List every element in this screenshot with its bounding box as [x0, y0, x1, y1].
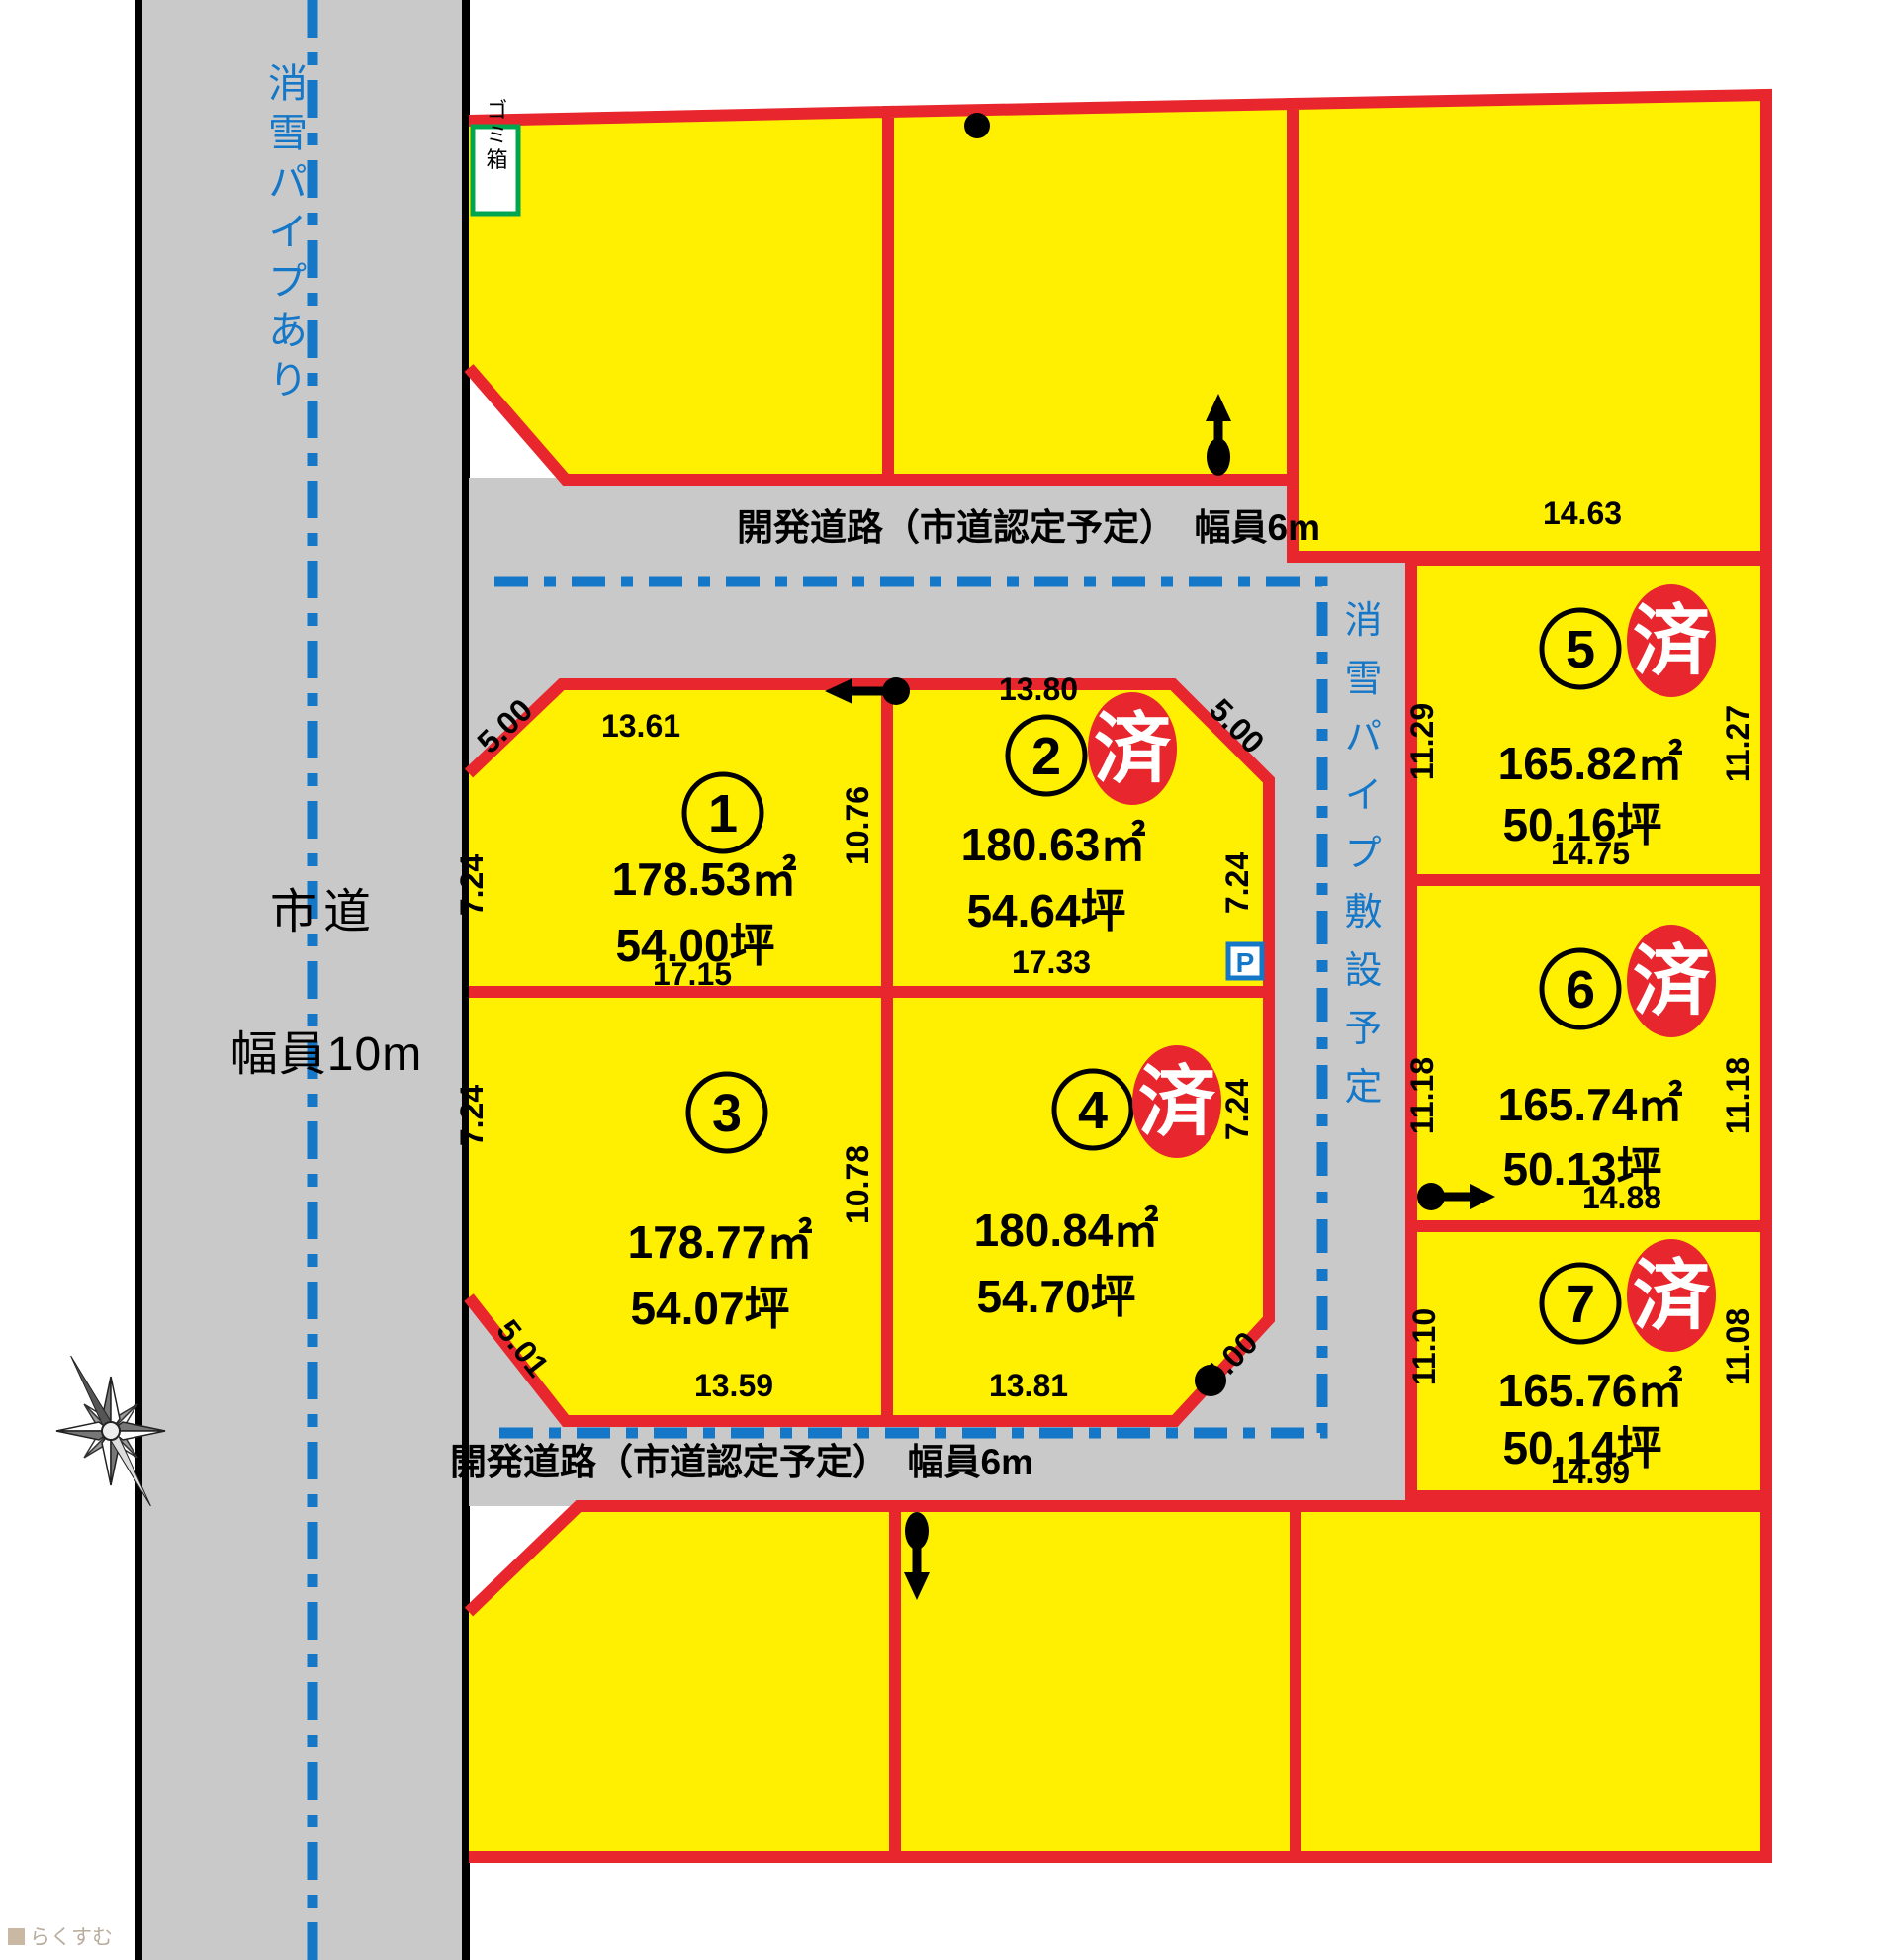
- lot-2-dim-right: 7.24: [1219, 852, 1255, 914]
- lot-2-dim-bottom: 17.33: [1012, 944, 1091, 980]
- lot-bottom-middle: [895, 1506, 1296, 1857]
- lot-4-tsubo: 54.70坪: [976, 1271, 1135, 1322]
- lot-1-dim-left: 7.24: [454, 854, 490, 916]
- lot-2-number: 2: [1031, 727, 1061, 786]
- parking-icon-label: P: [1236, 947, 1255, 978]
- lot-7-area: 165.76㎡: [1498, 1365, 1683, 1416]
- lot-5-area: 165.82㎡: [1498, 738, 1683, 789]
- lot-5-sold-label: 済: [1633, 597, 1711, 684]
- lot-bottom-left: [469, 1506, 895, 1857]
- lot-7-tsubo: 50.14坪: [1502, 1422, 1661, 1473]
- lot-3-dim-left: 7.24: [454, 1085, 490, 1146]
- lot-top-middle: [888, 104, 1293, 480]
- snow-pipe-existing-label: 消雪パイプあり: [262, 62, 307, 408]
- lot-3-tsubo: 54.07坪: [630, 1283, 789, 1334]
- lot-6-tsubo: 50.13坪: [1502, 1143, 1661, 1195]
- lot-4-dim-bottom: 13.81: [989, 1368, 1068, 1403]
- top-road-label: 開発道路（市道認定予定） 幅員6m: [737, 506, 1320, 548]
- bottom-road-label: 開発道路（市道認定予定） 幅員6m: [450, 1441, 1033, 1482]
- lot-6-dim-right: 11.18: [1720, 1057, 1755, 1134]
- snow-pipe-planned-label: 消雪パイプ敷設予定: [1338, 600, 1381, 1125]
- lot-6-number: 6: [1566, 960, 1595, 1020]
- lot-5-dim-top: 14.63: [1543, 495, 1622, 531]
- city-road-left-edge: [135, 0, 142, 1960]
- lot-6-dim-left: 11.18: [1404, 1057, 1440, 1134]
- land-subdivision-map: 消雪パイプあり 市道 幅員10m ゴミ箱 開発道路（市道認定予定） 幅員6m 開…: [0, 0, 1883, 1960]
- lot-5-dim-right: 11.27: [1720, 705, 1755, 782]
- lot-6-sold-label: 済: [1633, 937, 1711, 1025]
- lot-1-dim-top: 13.61: [601, 708, 680, 744]
- lot-2-dim-top: 13.80: [999, 671, 1078, 707]
- site-plan-svg: 消雪パイプあり 市道 幅員10m ゴミ箱 開発道路（市道認定予定） 幅員6m 開…: [0, 0, 1883, 1960]
- lot-7-sold-label: 済: [1633, 1252, 1711, 1339]
- lot-7-number: 7: [1566, 1275, 1595, 1334]
- lot-2-tsubo: 54.64坪: [966, 885, 1125, 936]
- utility-dot-icon: [964, 113, 990, 138]
- lot-1-tsubo: 54.00坪: [615, 920, 774, 971]
- lot-2-sold-label: 済: [1094, 705, 1172, 792]
- lot-top-right: [1293, 95, 1766, 557]
- lot-5-tsubo: 50.16坪: [1502, 799, 1661, 850]
- lot-1-area: 178.53㎡: [612, 853, 797, 905]
- lot-4-area: 180.84㎡: [974, 1204, 1159, 1256]
- lot-3-dim-bottom: 13.59: [694, 1368, 773, 1403]
- lot-4-dim-right: 7.24: [1219, 1079, 1255, 1140]
- lot-5-dim-left: 11.29: [1404, 703, 1440, 780]
- city-road-width: 幅員10m: [230, 1028, 422, 1081]
- watermark: らくすむ: [8, 1926, 113, 1949]
- lot-6-area: 165.74㎡: [1498, 1079, 1683, 1130]
- lot-top-left: [469, 112, 888, 480]
- lot-3-area: 178.77㎡: [628, 1216, 813, 1268]
- lot-7-dim-left: 11.10: [1406, 1308, 1442, 1385]
- lot-1-dim-right: 10.76: [840, 786, 875, 865]
- trash-box-label: ゴミ箱: [484, 99, 508, 173]
- watermark-label: らくすむ: [30, 1926, 113, 1949]
- lot-4-sold-label: 済: [1138, 1058, 1216, 1145]
- lot-4-number: 4: [1078, 1081, 1108, 1140]
- lot-5-number: 5: [1566, 620, 1595, 679]
- lot-bottom-right: [1296, 1506, 1766, 1857]
- city-road-name: 市道: [270, 886, 377, 938]
- city-road-right-edge: [462, 0, 470, 1960]
- lot-1-number: 1: [708, 784, 738, 844]
- lot-7-dim-right: 11.08: [1720, 1308, 1755, 1385]
- corner-dot-icon: [1195, 1365, 1226, 1396]
- lot-2-area: 180.63㎡: [961, 819, 1146, 870]
- watermark-logo-icon: [8, 1928, 25, 1945]
- lot-3-number: 3: [712, 1084, 742, 1143]
- lot-3-dim-right: 10.78: [840, 1145, 875, 1224]
